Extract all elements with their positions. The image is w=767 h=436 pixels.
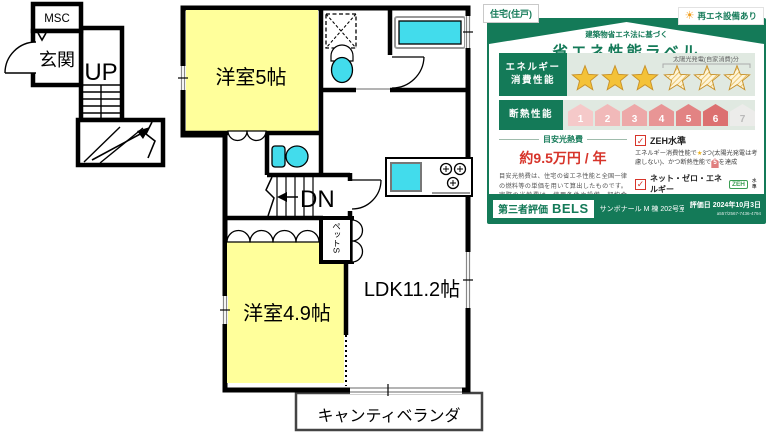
check-icon: ✓ (635, 135, 646, 146)
entrance-door-arc (5, 42, 37, 73)
renewable-tag: ☀ 再エネ設備あり (678, 7, 764, 25)
third-party-eval: 第三者評価 (498, 201, 548, 216)
insulation-level-6: 6 (703, 104, 728, 126)
stars-area: 太陽光発電(自家消費)分 (567, 53, 755, 96)
zeh-badge-suffix: 水準 (752, 178, 759, 190)
stars-solid (572, 66, 657, 90)
label-footer: 第三者評価 BELS サンボナール M 棟 202号室 評価日 2024年10月… (493, 198, 761, 220)
bathtub (395, 17, 465, 48)
insulation-row: 断熱性能 1 2 3 4 5 6 7 (499, 100, 755, 130)
utility-cost-value: 約9.5万円 / 年 (499, 148, 627, 168)
screenshot-root: キャンティベランダ (0, 0, 767, 436)
insulation-label: 断熱性能 (499, 100, 563, 130)
stars-solar-hatched (664, 66, 749, 90)
insulation-level-4: 4 (649, 104, 674, 126)
insulation-level-5: 5 (676, 104, 701, 126)
ldk-label: LDK11.2帖 (364, 278, 460, 301)
floor-plan: キャンティベランダ (0, 0, 485, 436)
kitchen-counter (386, 158, 472, 196)
energy-consumption-label: エネルギー 消費性能 (499, 53, 567, 96)
label-subtitle: 建築物省エネ法に基づく (489, 29, 764, 40)
insulation-level-7: 7 (730, 104, 755, 126)
star-rating: 太陽光発電(自家消費)分 (567, 53, 755, 96)
insulation-5-icon: 5 (711, 158, 718, 168)
utility-cost-header: 目安光熱費 (543, 134, 583, 145)
balcony: キャンティベランダ (296, 393, 482, 430)
balcony-label: キャンティベランダ (317, 407, 460, 425)
certificate-id: a557/2567-7436-4794 (690, 211, 761, 216)
label-panel: 建築物省エネ法に基づく 省エネ性能ラベル エネルギー 消費性能 (487, 18, 766, 224)
zeh-standard-note: エネルギー消費性能で★3つ(太陽光発電は考慮しない)、かつ断熱性能で5を達成 (635, 149, 759, 168)
evaluation-date-box: 評価日 2024年10月3日 a557/2567-7436-4794 (690, 202, 761, 216)
check-icon: ✓ (635, 179, 646, 190)
bels-cert-box: 第三者評価 BELS (493, 200, 594, 218)
evaluation-date: 評価日 2024年10月3日 (690, 202, 761, 210)
zeh-standard-title: ZEH水準 (650, 134, 686, 147)
msc-label: MSC (44, 13, 70, 25)
toilet (272, 146, 308, 167)
sun-icon: ☀ (685, 11, 695, 22)
renewable-tag-text: 再エネ設備あり (697, 10, 757, 22)
solar-note: 太陽光発電(自家消費)分 (673, 56, 739, 64)
room5-label: 洋室5帖 (215, 66, 286, 89)
pet-closet-label: ペットS (332, 222, 342, 254)
energy-consumption-row: エネルギー 消費性能 太陽光発電(自家消 (499, 53, 755, 96)
dwelling-type-tag: 住宅(住戸) (483, 4, 539, 23)
bels-logo: BELS (552, 201, 589, 216)
room49-label: 洋室4.9帖 (243, 302, 331, 325)
up-label: UP (84, 59, 117, 86)
building-name: サンボナール M 棟 202号室 (600, 204, 684, 214)
dn-label: DN (300, 186, 335, 213)
insulation-scale: 1 2 3 4 5 6 7 (563, 100, 755, 130)
insulation-level-2: 2 (595, 104, 620, 126)
insulation-level-3: 3 (622, 104, 647, 126)
label-body: 建築物省エネ法に基づく 省エネ性能ラベル エネルギー 消費性能 (489, 22, 764, 194)
genkan-label: 玄関 (39, 50, 75, 70)
energy-performance-label: 住宅(住戸) ☀ 再エネ設備あり 建築物省エネ法に基づく 省エネ性能ラベル エネ… (483, 3, 767, 233)
washbasin (331, 45, 353, 83)
insulation-level-1: 1 (568, 104, 593, 126)
zeh-badge-icon: ZEH (729, 180, 748, 189)
net-zero-title: ネット・ゼロ・エネルギー (650, 173, 725, 195)
